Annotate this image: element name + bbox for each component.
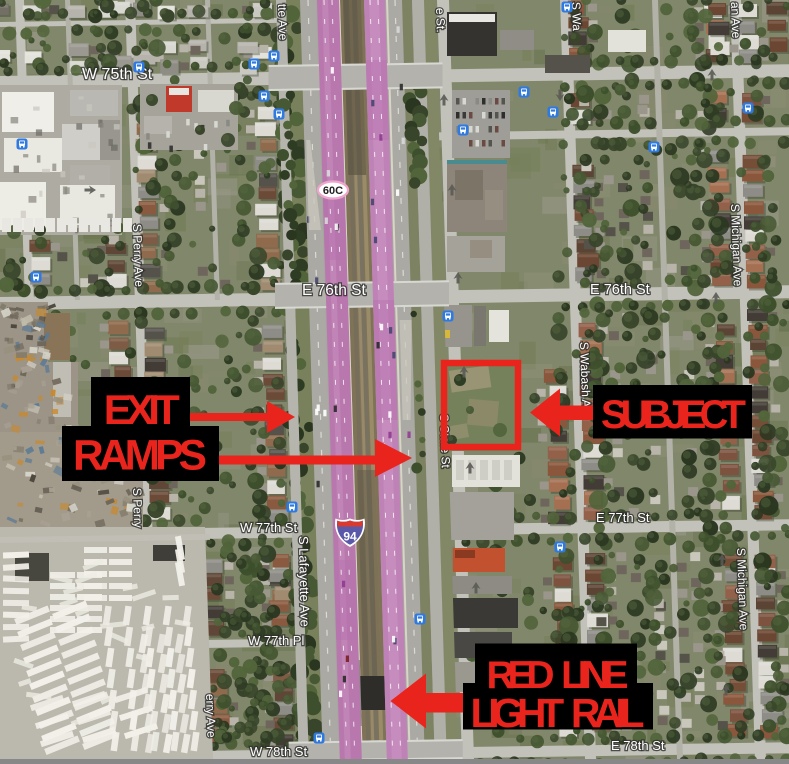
svg-text:tte Ave: tte Ave <box>275 4 290 41</box>
svg-text:RAMPS: RAMPS <box>73 433 207 480</box>
svg-text:an Ave: an Ave <box>728 2 743 39</box>
svg-text:E 78th St: E 78th St <box>611 738 665 753</box>
svg-text:W 78th St: W 78th St <box>250 744 307 759</box>
svg-text:SUBJECT: SUBJECT <box>601 393 746 437</box>
svg-text:E 76th St: E 76th St <box>302 282 366 299</box>
svg-text:EXIT: EXIT <box>104 386 180 433</box>
svg-text:S Perry: S Perry <box>130 488 145 528</box>
svg-text:S Michigan Ave: S Michigan Ave <box>728 204 745 287</box>
svg-text:W 77th St: W 77th St <box>240 520 297 535</box>
svg-text:60C: 60C <box>323 185 343 197</box>
svg-text:S Michigan Ave: S Michigan Ave <box>734 548 751 631</box>
svg-text:LIGHT RAIL: LIGHT RAIL <box>471 690 645 736</box>
svg-text:S Lafayette Ave: S Lafayette Ave <box>296 536 313 627</box>
svg-text:W 77th Pl: W 77th Pl <box>248 633 304 648</box>
svg-text:E 76th St: E 76th St <box>590 282 650 298</box>
svg-text:S Wabash Av: S Wabash Av <box>577 342 593 414</box>
svg-text:erry Ave: erry Ave <box>203 694 219 739</box>
svg-text:E 77th St: E 77th St <box>596 510 650 525</box>
svg-text:e St.: e St. <box>433 8 448 33</box>
svg-text:S Perry Ave: S Perry Ave <box>130 224 146 288</box>
svg-text:94: 94 <box>343 530 357 544</box>
